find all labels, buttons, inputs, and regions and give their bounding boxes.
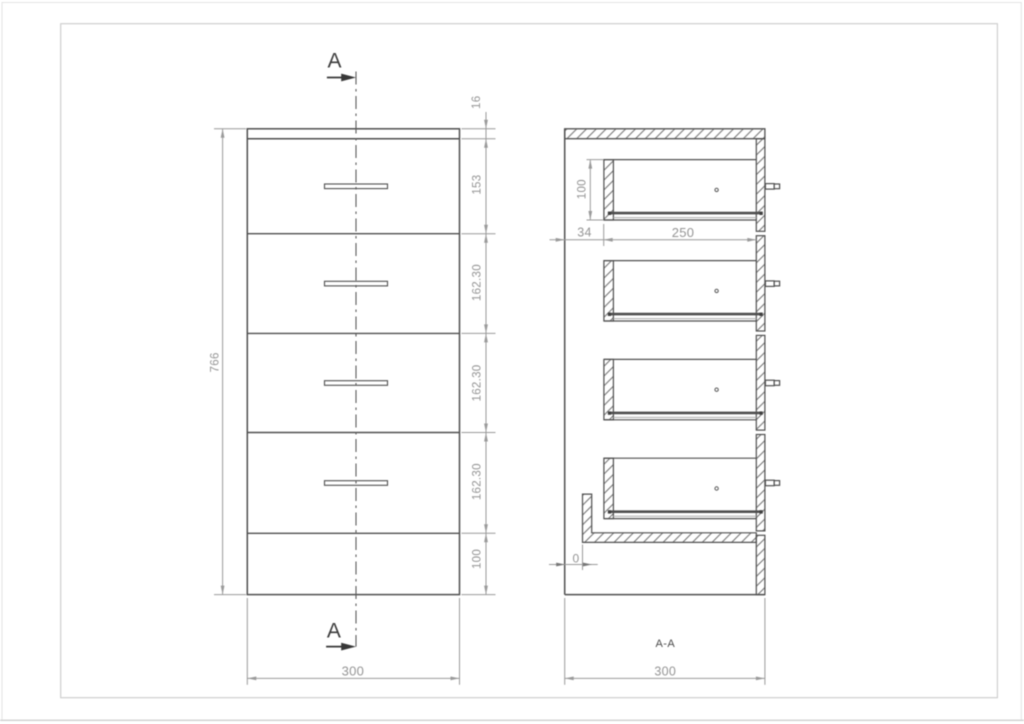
svg-text:300: 300 — [342, 664, 365, 679]
svg-text:162.30: 162.30 — [472, 365, 484, 402]
svg-text:A-A: A-A — [656, 638, 676, 650]
svg-text:A: A — [327, 50, 341, 73]
svg-text:16: 16 — [471, 96, 483, 109]
svg-text:766: 766 — [210, 352, 222, 372]
svg-text:300: 300 — [654, 665, 676, 679]
svg-text:100: 100 — [472, 549, 484, 569]
svg-text:153: 153 — [472, 175, 484, 195]
svg-text:34: 34 — [577, 226, 592, 240]
svg-text:100: 100 — [577, 179, 589, 199]
svg-text:0: 0 — [573, 551, 580, 565]
svg-text:A: A — [327, 619, 341, 642]
svg-text:162.30: 162.30 — [472, 264, 484, 301]
svg-text:250: 250 — [672, 225, 695, 240]
svg-text:162.30: 162.30 — [472, 463, 484, 500]
